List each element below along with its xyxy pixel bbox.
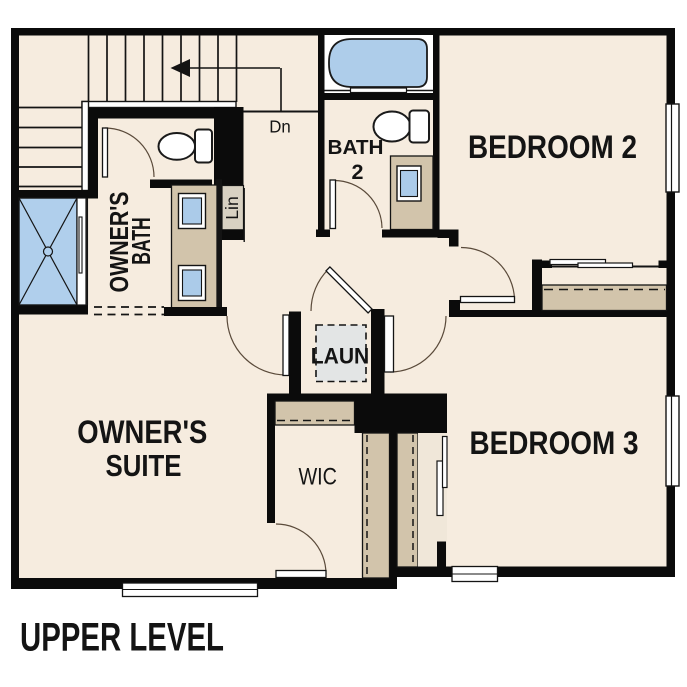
svg-text:2: 2: [352, 160, 364, 184]
svg-text:BEDROOM 2: BEDROOM 2: [468, 129, 637, 165]
svg-text:SUITE: SUITE: [106, 448, 182, 483]
svg-text:LAUN: LAUN: [311, 344, 370, 369]
svg-text:OWNER'S: OWNER'S: [77, 414, 207, 450]
svg-text:BEDROOM 3: BEDROOM 3: [470, 425, 639, 461]
svg-text:Dn: Dn: [269, 117, 291, 137]
svg-text:BATH: BATH: [126, 217, 156, 265]
svg-text:UPPER LEVEL: UPPER LEVEL: [20, 616, 224, 660]
svg-text:Lin: Lin: [222, 196, 242, 220]
svg-text:BATH: BATH: [328, 136, 384, 159]
svg-text:WIC: WIC: [298, 464, 337, 491]
